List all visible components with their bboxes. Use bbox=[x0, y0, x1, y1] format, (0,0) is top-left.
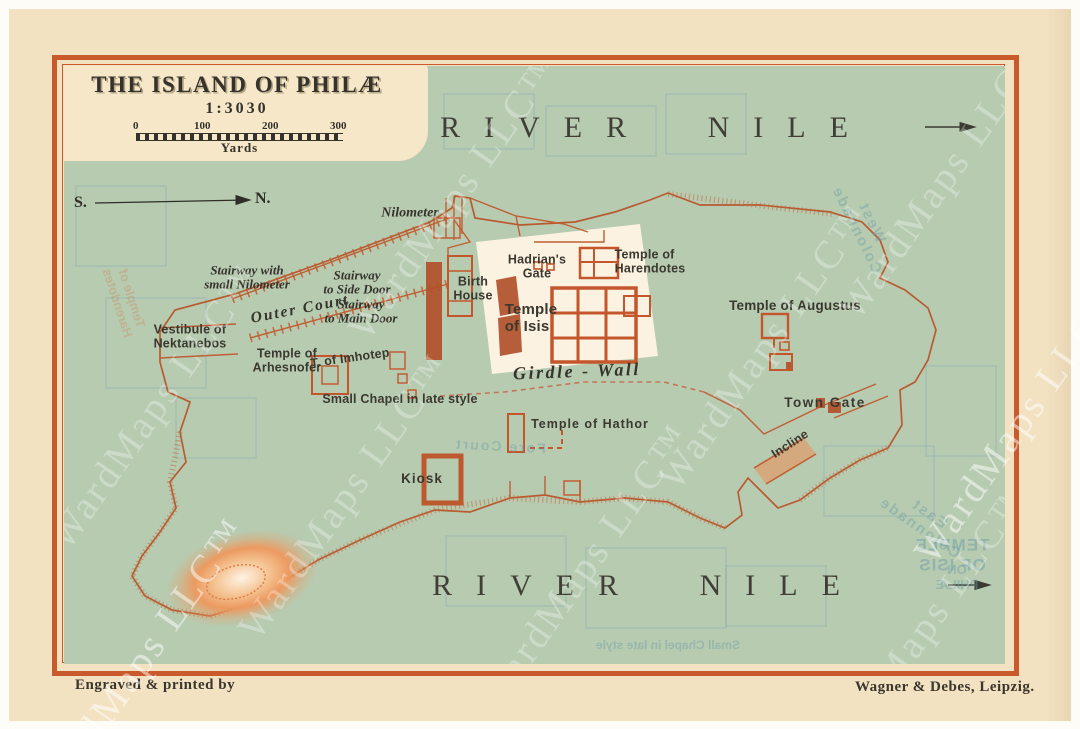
compass-south-label: S. bbox=[74, 194, 87, 212]
label-stairway-small-nilometer: Stairway with small Nilometer bbox=[204, 264, 290, 293]
label-vestibule-of-nektanebos: Vestibule of Nektanebos bbox=[154, 323, 227, 352]
label-hadrians-gate: Hadrian's Gate bbox=[508, 253, 566, 282]
label-small-chapel: Small Chapel in late style bbox=[322, 392, 477, 406]
river-nile-bottom: RIVER NILE bbox=[432, 569, 864, 603]
verso-label-on-philae: ON PHILÆ bbox=[933, 563, 981, 593]
scale-tick-200: 200 bbox=[262, 120, 279, 132]
label-kiosk: Kiosk bbox=[401, 471, 443, 487]
map-scale-ratio: 1:3030 bbox=[64, 100, 412, 118]
label-temple-of-hathor: Temple of Hathor bbox=[531, 417, 649, 431]
girdle-wall-line bbox=[440, 382, 740, 410]
scale-unit: Yards bbox=[136, 140, 343, 156]
label-temple-of-harendotes: Temple of Harendotes bbox=[615, 248, 686, 277]
map-title: THE ISLAND OF PHILÆ bbox=[64, 72, 412, 98]
scale-tick-300: 300 bbox=[330, 120, 347, 132]
label-temple-of-isis: Temple of Isis bbox=[505, 301, 558, 336]
label-town-gate: Town Gate bbox=[784, 395, 866, 411]
river-nile-top: RIVER NILE bbox=[440, 111, 872, 145]
scanned-map-page: Temple of Harendotes West Colonnade East… bbox=[0, 0, 1080, 729]
title-block: THE ISLAND OF PHILÆ 1:3030 0 100 200 300… bbox=[64, 66, 428, 161]
rocky-hill bbox=[155, 513, 329, 642]
verso-label-small-chapel: Small Chapel in late style bbox=[596, 639, 740, 653]
label-stairway-main-door: Stairway to Main Door bbox=[325, 298, 398, 327]
river-arrow-top bbox=[925, 123, 975, 132]
label-temple-of-augustus: Temple of Augustus bbox=[729, 298, 861, 314]
imprint-publisher: Wagner & Debes, Leipzig. bbox=[855, 679, 1035, 696]
compass-north-label: N. bbox=[255, 190, 271, 208]
scale-tick-100: 100 bbox=[194, 120, 211, 132]
compass-arrow bbox=[95, 196, 250, 205]
imprint-engraver: Engraved & printed by bbox=[75, 677, 235, 694]
map-area: Temple of Harendotes West Colonnade East… bbox=[64, 66, 1005, 664]
paper-edge-shade bbox=[1045, 9, 1071, 721]
label-birth-house: Birth House bbox=[453, 275, 492, 304]
label-nilometer: Nilometer bbox=[381, 205, 439, 220]
scale-bar: 0 100 200 300 Yards bbox=[136, 124, 343, 150]
scale-tick-0: 0 bbox=[133, 120, 139, 132]
